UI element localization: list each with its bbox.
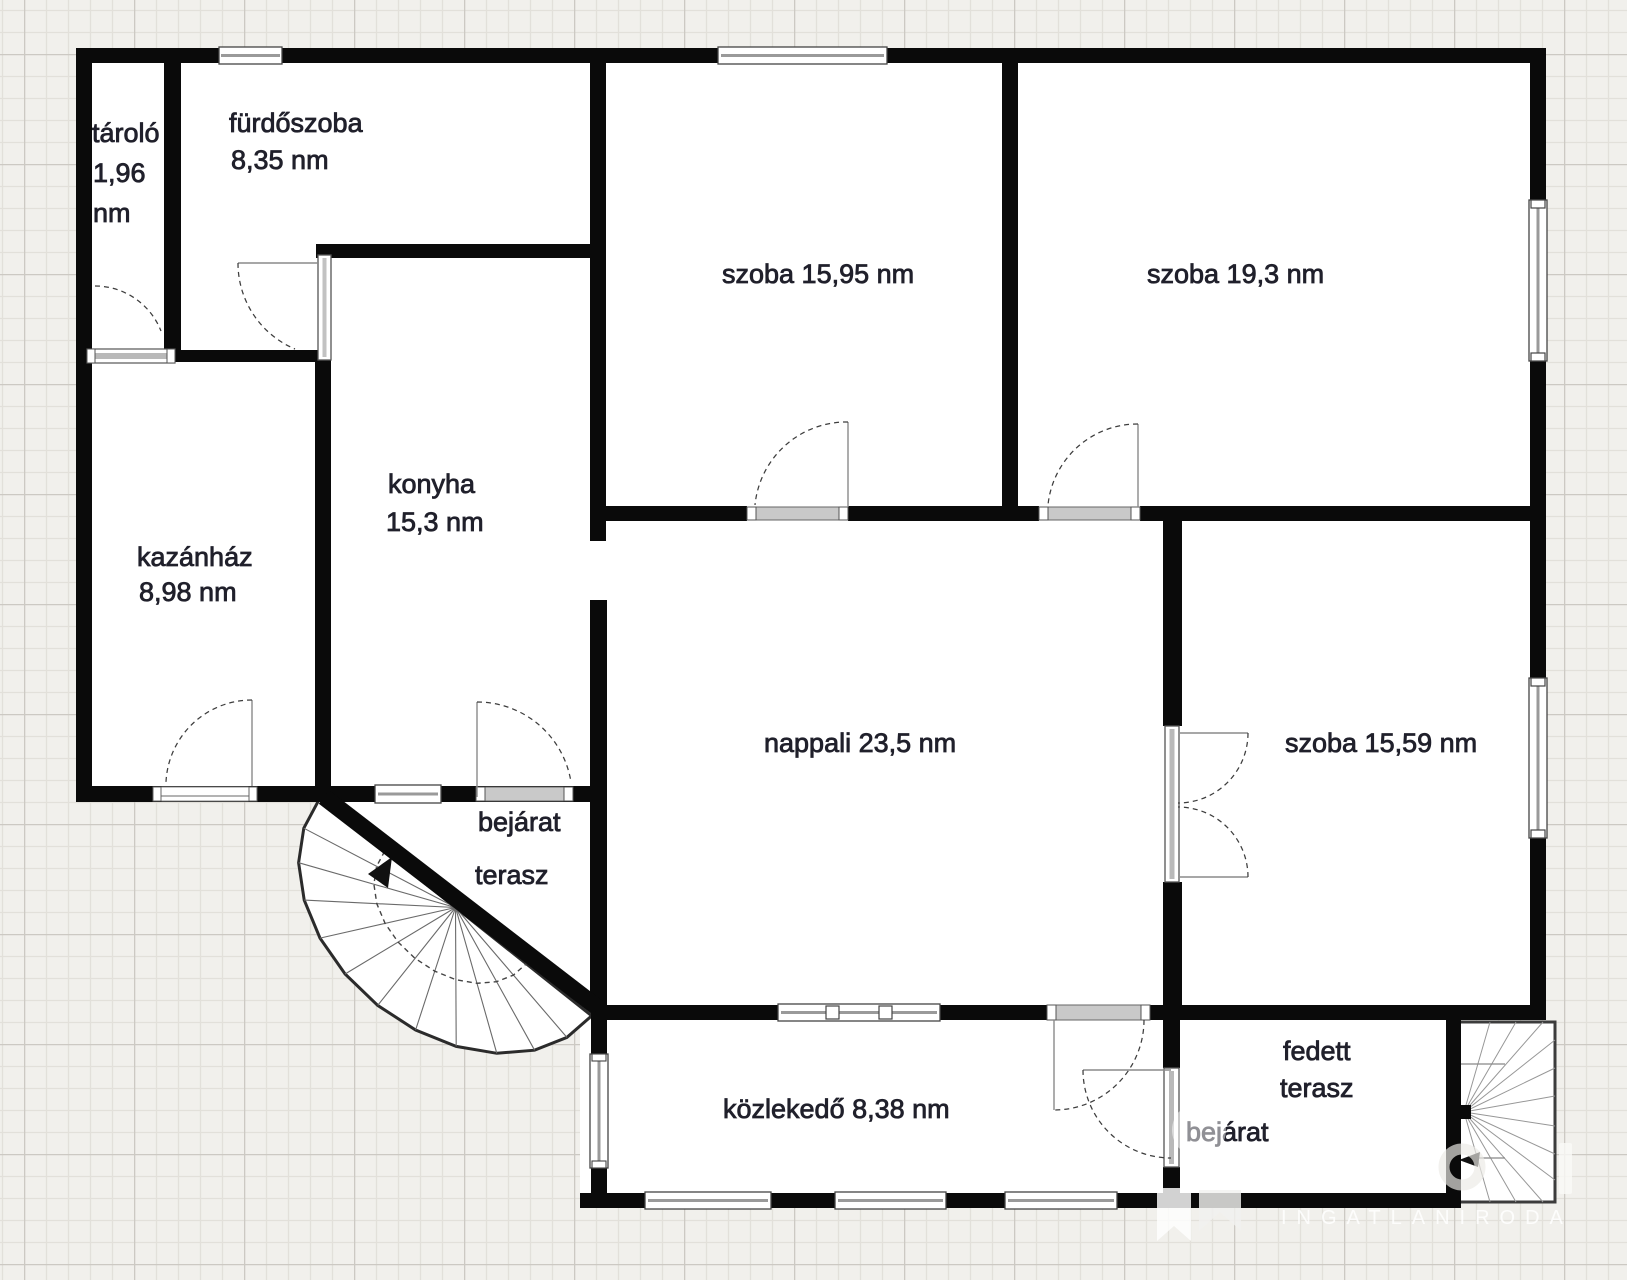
svg-text:kazánház: kazánház (137, 542, 253, 572)
svg-text:15,3 nm: 15,3 nm (386, 507, 484, 537)
svg-text:szoba 15,59 nm: szoba 15,59 nm (1285, 728, 1477, 758)
svg-text:1,96: 1,96 (93, 158, 146, 188)
svg-text:terasz: terasz (1280, 1073, 1354, 1103)
svg-text:terasz: terasz (475, 860, 549, 890)
svg-text:nappali 23,5 nm: nappali 23,5 nm (764, 728, 956, 758)
svg-text:tároló: tároló (92, 118, 160, 148)
svg-text:szoba 15,95 nm: szoba 15,95 nm (722, 259, 914, 289)
svg-text:közlekedő 8,38 nm: közlekedő 8,38 nm (723, 1094, 950, 1124)
svg-text:nm: nm (93, 198, 131, 228)
svg-text:fürdőszoba: fürdőszoba (229, 108, 364, 138)
svg-text:szoba 19,3 nm: szoba 19,3 nm (1147, 259, 1324, 289)
svg-text:8,98 nm: 8,98 nm (139, 577, 237, 607)
svg-text:bejárat: bejárat (478, 807, 561, 837)
svg-text:INGATLANIRODA: INGATLANIRODA (1281, 1207, 1573, 1229)
svg-text:konyha: konyha (388, 469, 476, 499)
svg-text:fedett: fedett (1283, 1036, 1351, 1066)
svg-text:8,35 nm: 8,35 nm (231, 145, 329, 175)
